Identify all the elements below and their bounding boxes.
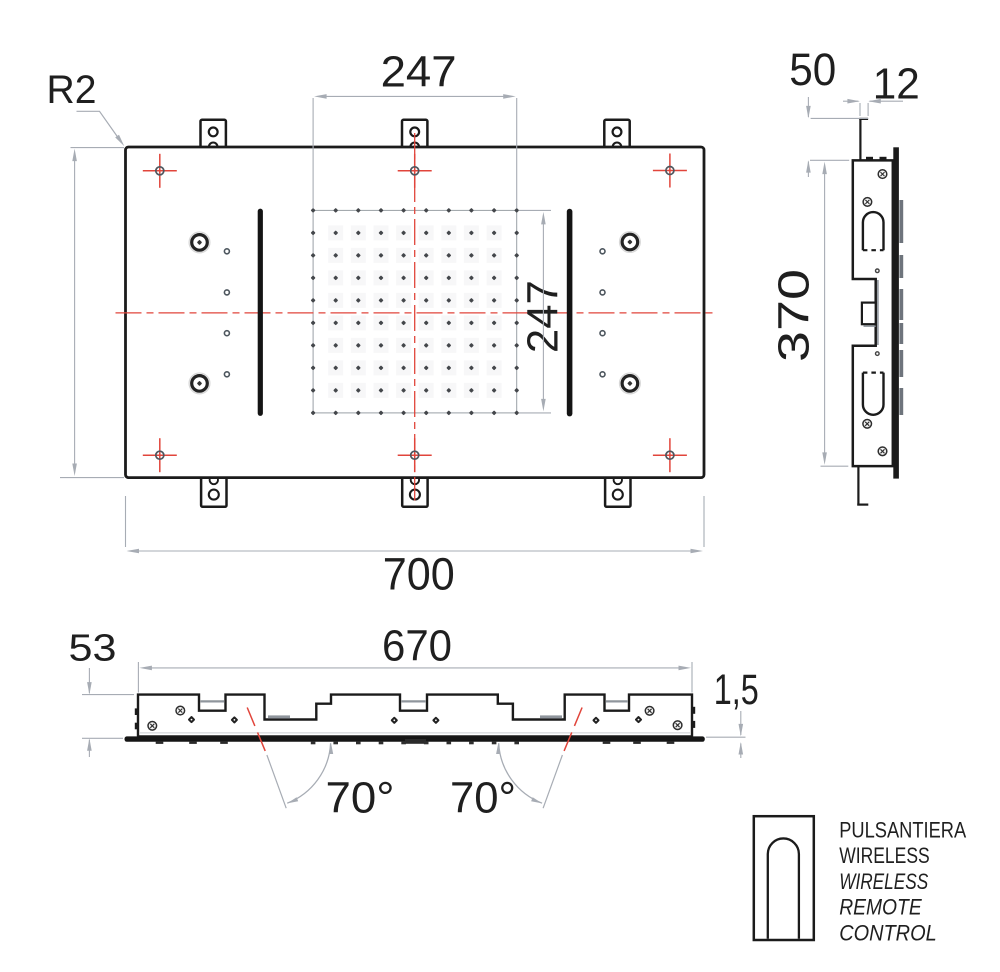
svg-text:370: 370	[770, 269, 819, 362]
svg-text:REMOTE: REMOTE	[839, 895, 922, 920]
svg-text:247: 247	[381, 47, 457, 96]
svg-text:R2: R2	[47, 68, 97, 112]
svg-text:WIRELESS: WIRELESS	[839, 869, 928, 894]
svg-text:1,5: 1,5	[714, 666, 759, 714]
svg-text:CONTROL: CONTROL	[839, 920, 937, 945]
svg-text:70°: 70°	[450, 773, 516, 822]
svg-text:WIRELESS: WIRELESS	[839, 843, 930, 868]
svg-text:670: 670	[382, 622, 452, 671]
svg-text:50: 50	[789, 44, 836, 95]
svg-text:PULSANTIERA: PULSANTIERA	[839, 818, 966, 843]
svg-text:70°: 70°	[326, 773, 395, 822]
svg-text:53: 53	[69, 628, 117, 670]
svg-text:700: 700	[383, 548, 455, 599]
